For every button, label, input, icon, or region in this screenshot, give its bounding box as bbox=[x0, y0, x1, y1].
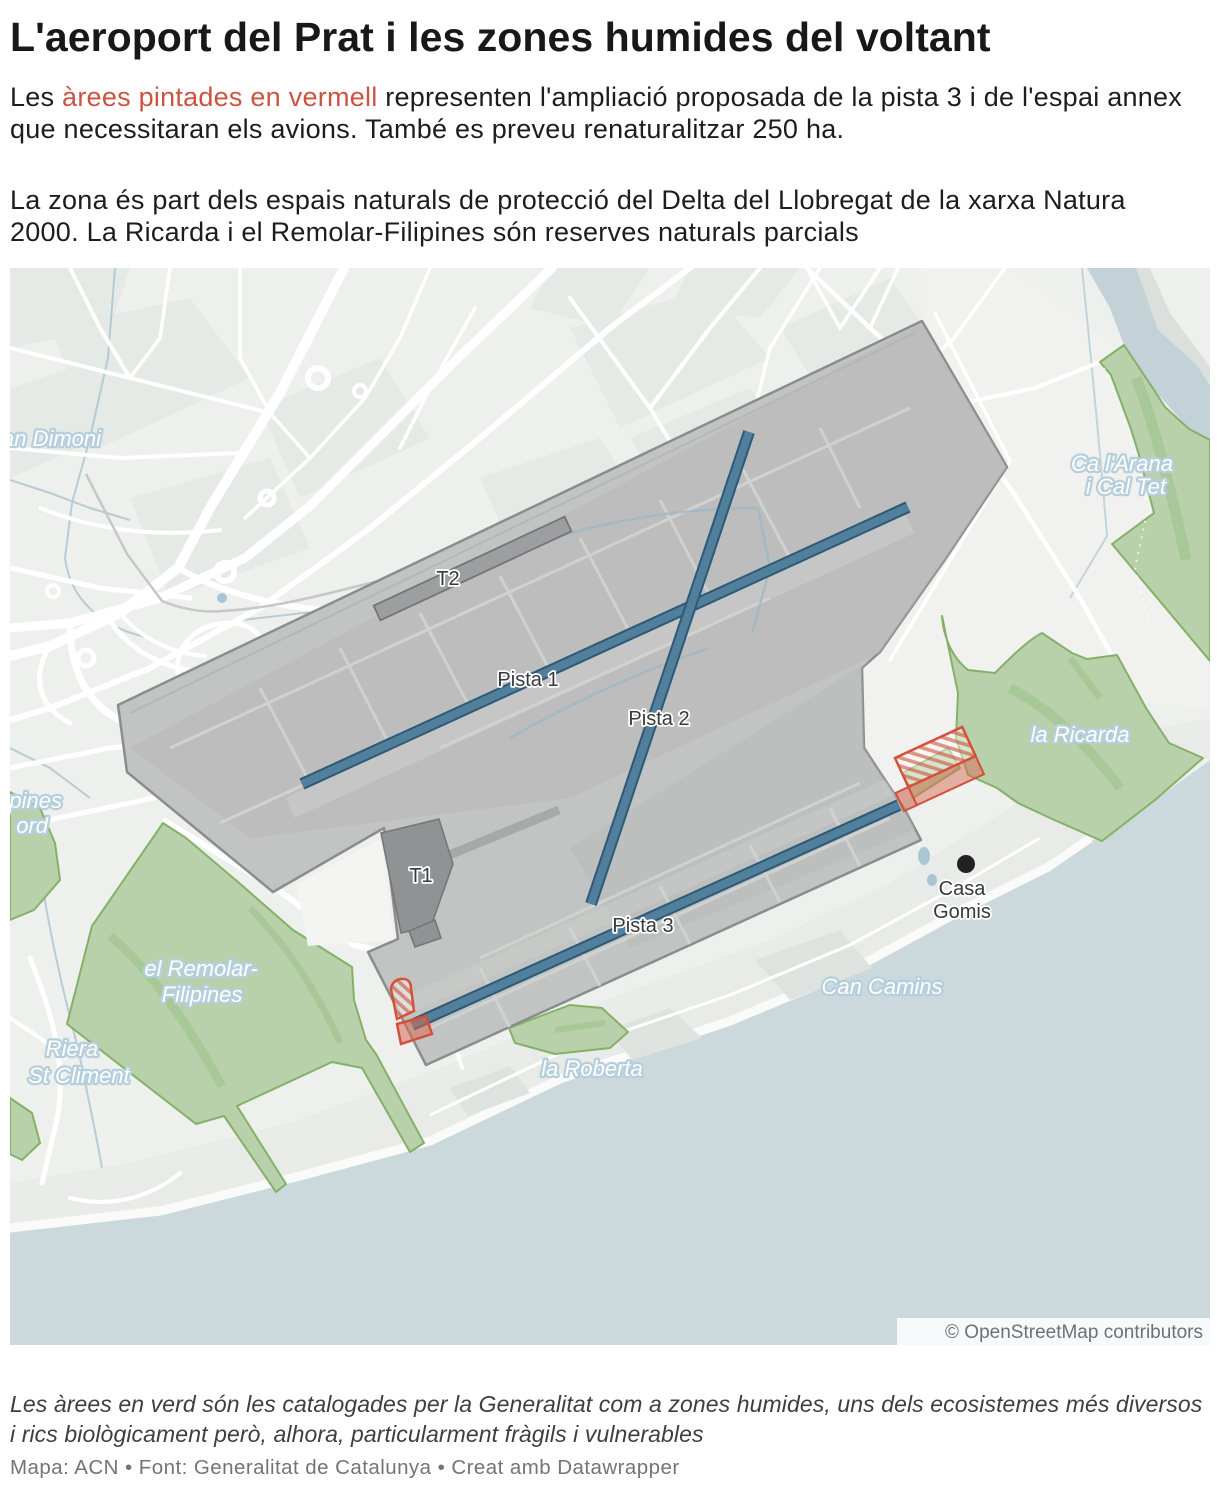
svg-text:Can Camins: Can Camins bbox=[821, 974, 942, 999]
svg-text:pines: pines bbox=[10, 788, 62, 813]
svg-text:ord: ord bbox=[16, 813, 49, 838]
svg-text:Casa: Casa bbox=[939, 878, 987, 900]
svg-text:Pista 3: Pista 3 bbox=[612, 915, 673, 937]
svg-text:T2: T2 bbox=[436, 568, 459, 590]
svg-text:el Remolar-: el Remolar- bbox=[144, 956, 257, 981]
svg-text:Gomis: Gomis bbox=[933, 901, 991, 923]
svg-text:Filipines: Filipines bbox=[162, 982, 243, 1007]
svg-text:Pista 2: Pista 2 bbox=[628, 708, 689, 730]
svg-text:i Cal Tet: i Cal Tet bbox=[1086, 474, 1167, 499]
svg-text:T1: T1 bbox=[409, 865, 432, 887]
svg-text:Ca l'Arana: Ca l'Arana bbox=[1071, 451, 1173, 476]
svg-text:Riera: Riera bbox=[46, 1036, 99, 1061]
svg-text:© OpenStreetMap contributors: © OpenStreetMap contributors bbox=[945, 1322, 1203, 1343]
svg-text:an Dimoni: an Dimoni bbox=[10, 426, 102, 451]
svg-text:la Ricarda: la Ricarda bbox=[1030, 722, 1129, 747]
svg-text:St Climent: St Climent bbox=[28, 1063, 130, 1088]
svg-text:Pista 1: Pista 1 bbox=[497, 669, 558, 691]
svg-text:la Roberta: la Roberta bbox=[541, 1056, 643, 1081]
